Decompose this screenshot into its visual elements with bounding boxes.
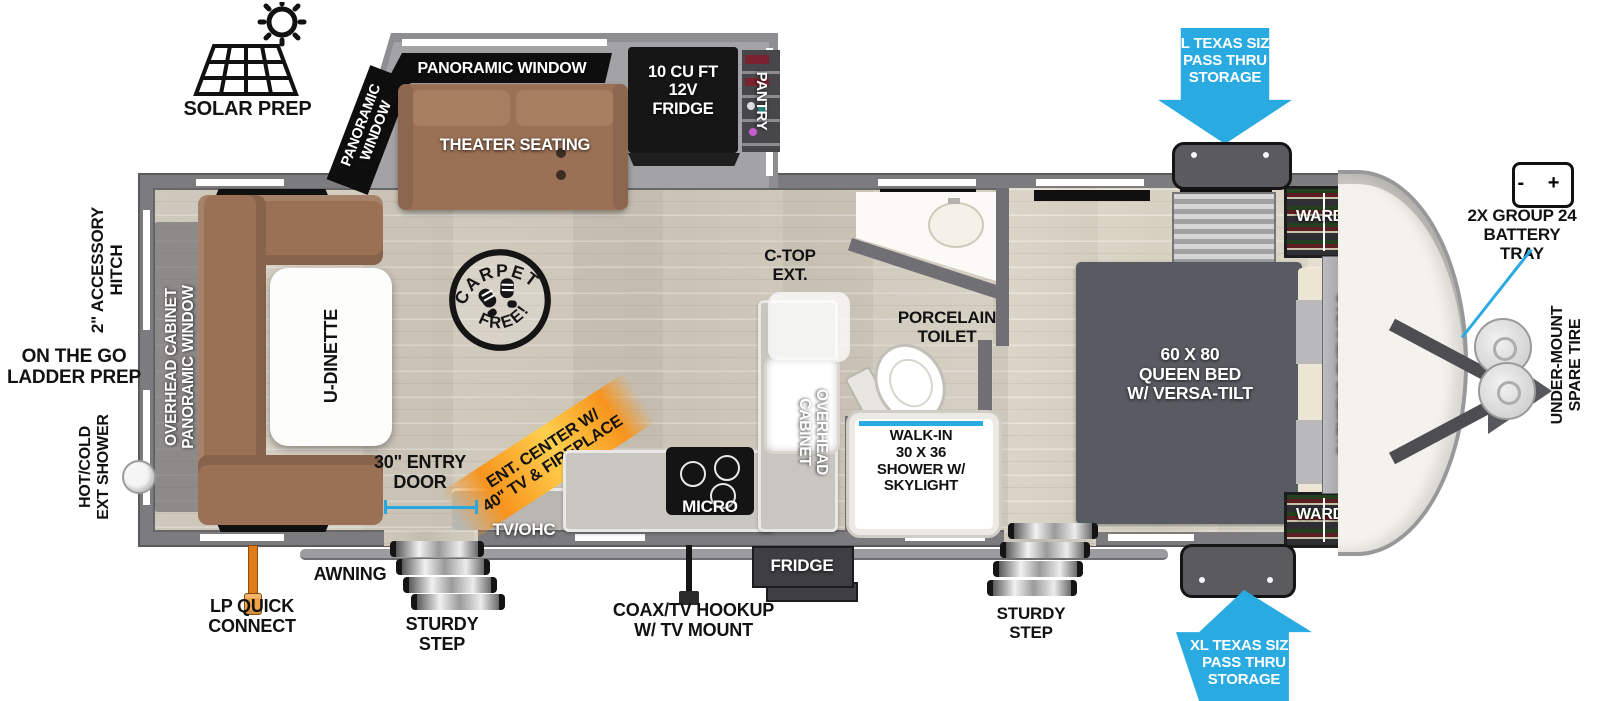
sofa-backrest-left (412, 90, 510, 126)
bedroom-window-left (1034, 190, 1150, 201)
burner (680, 461, 706, 487)
entry-door-measure-tick (384, 500, 387, 514)
tank-valve (1493, 337, 1517, 361)
battery-tray-label: 2X GROUP 24 BATTERY TRAY (1446, 206, 1598, 263)
shower-label: WALK-IN 30 X 36 SHOWER W/ SKYLIGHT (850, 428, 992, 495)
vanity-faucet (948, 198, 960, 204)
propane-tank (1478, 362, 1536, 420)
vanity-sink (928, 202, 984, 248)
sofa-backrest-right (516, 90, 614, 126)
theater-seating-label: THEATER SEATING (405, 136, 625, 154)
entry-door-measure-tick (475, 500, 478, 514)
coax-cable (686, 545, 692, 593)
window-strip (196, 179, 284, 186)
screw (1199, 577, 1205, 583)
window-strip (878, 179, 976, 186)
dinette-bench-bottom (198, 455, 383, 525)
pass-thru-door-bottom (1180, 544, 1296, 598)
tv-ohc-label: TV/OHC (478, 520, 570, 539)
panoramic-window-top-label: PANORAMIC WINDOW (392, 60, 612, 78)
queen-bed-label: 60 X 80 QUEEN BED W/ VERSA-TILT (1084, 345, 1296, 404)
tank-valve (1497, 381, 1521, 405)
rear-wall-label: OVERHEAD CABINET PANORAMIC WINDOW (163, 225, 203, 509)
shower-skylight (859, 421, 983, 426)
sturdy-step-right-label: STURDY STEP (976, 604, 1086, 642)
battery-icon: - + (1512, 162, 1574, 208)
fridge-12v-label: 10 CU FT 12V FRIDGE (630, 63, 736, 118)
ext-shower-label: HOT/COLD EXT SHOWER (77, 402, 117, 532)
window-strip (575, 534, 645, 541)
awning-label: AWNING (300, 564, 400, 584)
step-tread (987, 580, 1077, 596)
window-strip (200, 534, 284, 541)
step-tread (396, 559, 490, 575)
fridge-12v-base (628, 153, 740, 166)
screw (1263, 152, 1269, 158)
step-tread (390, 541, 484, 557)
nightstand (1172, 192, 1276, 264)
fridge-access-label: FRIDGE (752, 556, 852, 575)
screw (1191, 152, 1197, 158)
sofa-cupholder (556, 170, 566, 180)
porcelain-toilet-label: PORCELAIN TOILET (872, 308, 1022, 346)
lp-quick-connect-label: LP QUICK CONNECT (178, 596, 326, 636)
step-tread (411, 594, 505, 610)
entry-door-label: 30" ENTRY DOOR (358, 452, 482, 492)
burner (714, 455, 740, 481)
window-strip (402, 39, 607, 46)
lp-pipe (248, 545, 258, 597)
solar-prep-label: SOLAR PREP (165, 98, 330, 120)
spare-tire-label: UNDER-MOUNT SPARE TIRE (1549, 285, 1585, 445)
ext-shower-knob (122, 460, 156, 494)
window-strip (1108, 534, 1194, 541)
ladder-prep-label: ON THE GO LADDER PREP (0, 346, 148, 389)
c-top-extension (768, 292, 850, 362)
accessory-hitch-label: 2" ACCESSORY HITCH (88, 185, 132, 355)
micro-label: MICRO (662, 497, 758, 516)
solar-prep-icon (190, 2, 320, 102)
bed-tilt-hardware (1296, 420, 1324, 484)
screw (1267, 577, 1273, 583)
coax-label: COAX/TV HOOKUP W/ TV MOUNT (596, 600, 791, 640)
kitchen-ohc-label: OVERHEAD CABINET (794, 357, 830, 507)
step-tread (1008, 523, 1098, 539)
window-strip (1036, 179, 1144, 186)
step-tread (403, 577, 497, 593)
step-tread (1000, 542, 1090, 558)
pass-thru-top-label: XL TEXAS SIZE PASS THRU STORAGE (1160, 36, 1290, 86)
pantry-label: PANTRY (753, 51, 769, 151)
pass-thru-door-top (1172, 142, 1292, 190)
bed-tilt-hardware (1296, 300, 1324, 364)
c-top-ext-label: C-TOP EXT. (742, 246, 838, 284)
pass-thru-bottom-label: XL TEXAS SIZE PASS THRU STORAGE (1178, 638, 1310, 688)
window-strip (143, 210, 150, 330)
floorplan-canvas: OVERHEAD CABINET PANORAMIC WINDOW U-DINE… (0, 0, 1600, 701)
entry-door-measure-line (384, 506, 478, 509)
sturdy-step-left-label: STURDY STEP (382, 614, 502, 654)
step-tread (993, 561, 1083, 577)
u-dinette-label: U-DINETTE (321, 271, 341, 441)
